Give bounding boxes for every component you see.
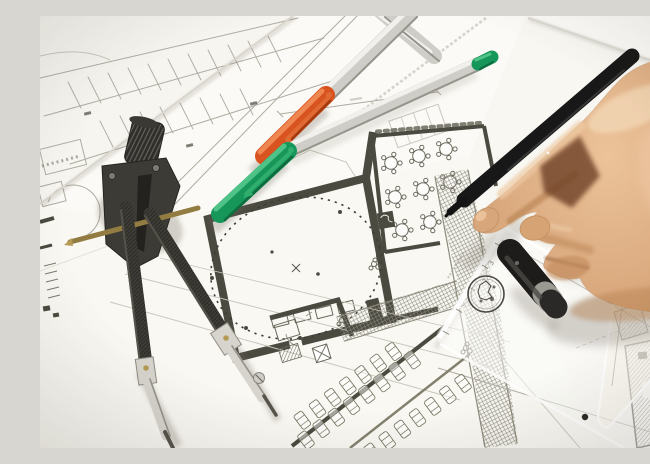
photo-architect-hand-drawing: Close-up photograph of a right hand draw… (40, 16, 650, 448)
vignette-overlay (40, 16, 650, 448)
photo-canvas: 3 7 (40, 16, 650, 448)
